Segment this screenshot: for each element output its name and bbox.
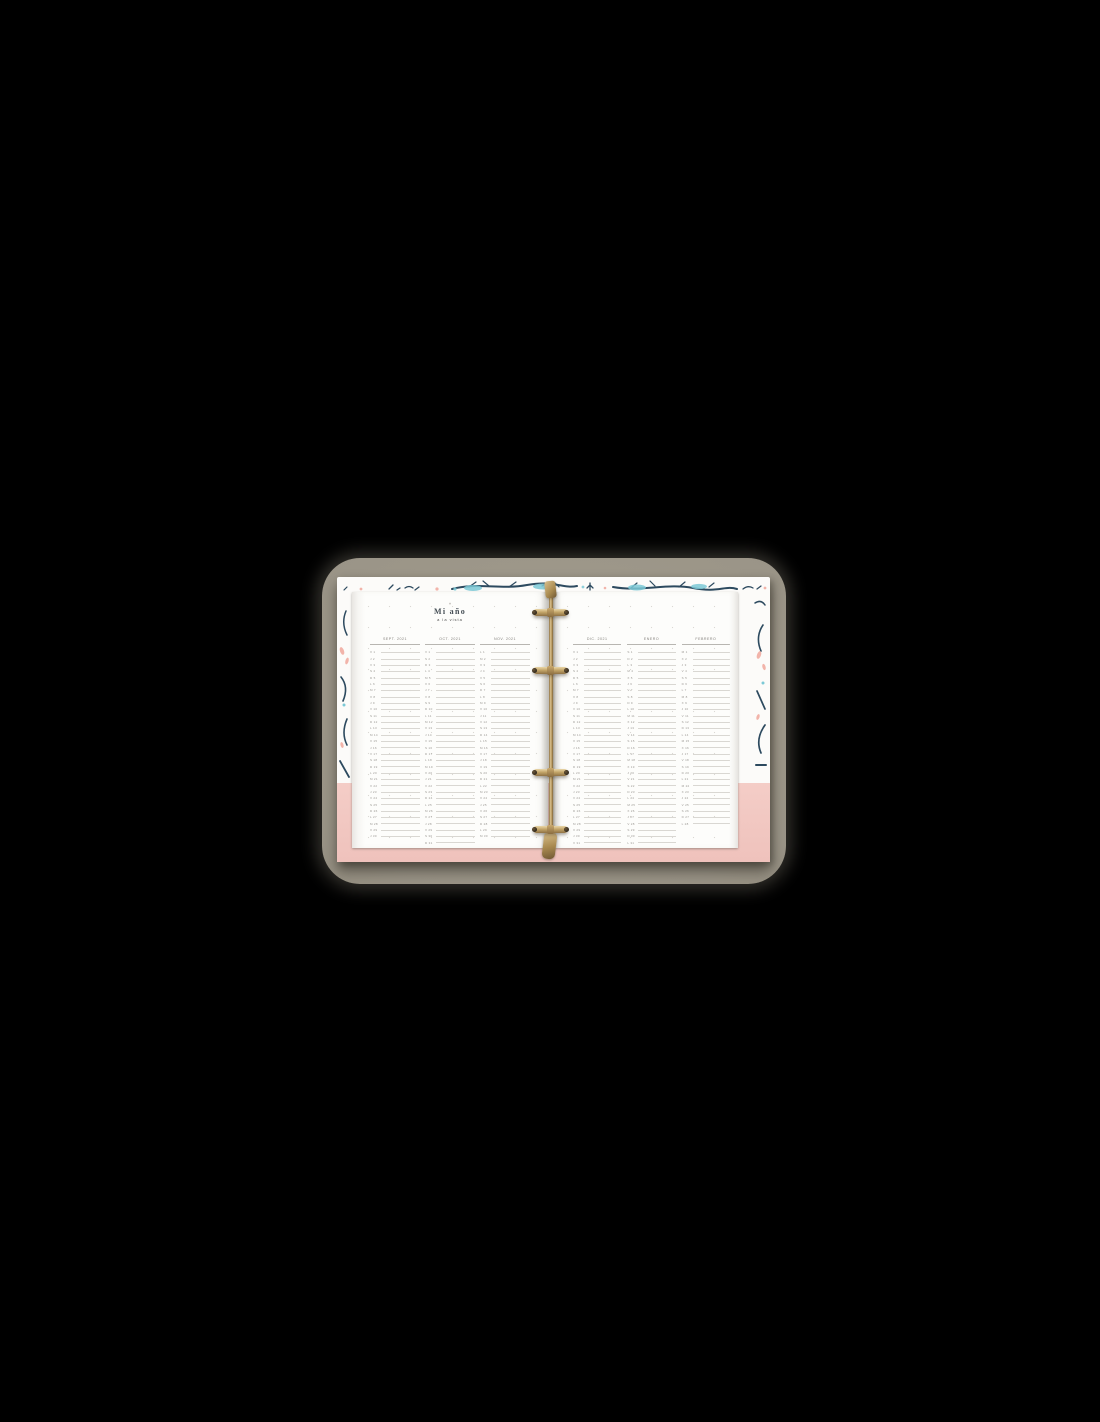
- day-writing-line: [693, 760, 730, 761]
- day-writing-line: [491, 735, 530, 736]
- day-writing-line: [381, 792, 420, 793]
- day-writing-line: [693, 665, 730, 666]
- day-writing-line: [584, 760, 621, 761]
- day-writing-line: [584, 678, 621, 679]
- day-writing-line: [436, 792, 475, 793]
- day-label: V 22: [425, 784, 436, 788]
- month-header: ENERO: [627, 637, 675, 642]
- day-writing-line: [491, 836, 530, 837]
- day-label: S 5: [682, 676, 693, 680]
- day-writing-line: [381, 766, 420, 767]
- day-label: V 4: [682, 669, 693, 673]
- day-label: D 19: [573, 765, 584, 769]
- day-label: S 30: [425, 834, 436, 838]
- day-label: V 17: [370, 752, 381, 756]
- day-label: M 9: [480, 701, 491, 705]
- day-label: M 21: [573, 777, 584, 781]
- day-label: J 6: [627, 682, 638, 686]
- month-header: NOV. 2021: [480, 637, 530, 642]
- day-rows: V 1S 2D 3L 4M 5X 6J 7V 8S 9D 10L 11M 12X…: [425, 648, 475, 845]
- day-writing-line: [693, 652, 730, 653]
- day-writing-line: [491, 671, 530, 672]
- day-label: D 9: [627, 701, 638, 705]
- day-writing-line: [638, 671, 675, 672]
- day-writing-line: [638, 766, 675, 767]
- day-label: X 22: [573, 784, 584, 788]
- day-label: X 19: [627, 765, 638, 769]
- day-writing-line: [381, 779, 420, 780]
- day-label: J 30: [370, 834, 381, 838]
- day-writing-line: [584, 842, 621, 843]
- day-label: M 11: [627, 714, 638, 718]
- day-label: X 20: [425, 771, 436, 775]
- day-rows: X 1J 2V 3S 4D 5L 6M 7X 8J 9V 10S 11D 12L…: [370, 648, 420, 838]
- day-writing-line: [436, 671, 475, 672]
- day-writing-line: [693, 671, 730, 672]
- day-writing-line: [491, 760, 530, 761]
- day-label: L 20: [370, 771, 381, 775]
- day-label: D 21: [480, 777, 491, 781]
- day-label: L 4: [425, 669, 436, 673]
- day-writing-line: [584, 747, 621, 748]
- day-writing-line: [584, 785, 621, 786]
- day-label: J 13: [627, 726, 638, 730]
- day-writing-line: [638, 709, 675, 710]
- day-label: M 14: [573, 733, 584, 737]
- day-label: V 31: [573, 841, 584, 845]
- day-label: V 12: [480, 720, 491, 724]
- day-label: M 23: [480, 790, 491, 794]
- day-writing-line: [693, 709, 730, 710]
- month-header: FEBRERO: [682, 637, 730, 642]
- day-writing-line: [638, 659, 675, 660]
- day-label: J 16: [370, 746, 381, 750]
- day-writing-line: [491, 716, 530, 717]
- day-label: V 25: [682, 803, 693, 807]
- month-header: SEPT. 2021: [370, 637, 420, 642]
- day-writing-line: [584, 722, 621, 723]
- day-writing-line: [491, 703, 530, 704]
- day-writing-line: [436, 830, 475, 831]
- day-writing-line: [693, 811, 730, 812]
- day-writing-line: [491, 722, 530, 723]
- day-writing-line: [436, 709, 475, 710]
- day-writing-line: [638, 741, 675, 742]
- day-writing-line: [381, 678, 420, 679]
- day-writing-line: [693, 684, 730, 685]
- day-writing-line: [436, 754, 475, 755]
- day-label: J 27: [627, 815, 638, 819]
- day-writing-line: [491, 709, 530, 710]
- day-writing-line: [436, 652, 475, 653]
- day-writing-line: [693, 690, 730, 691]
- day-writing-line: [381, 836, 420, 837]
- day-label: X 26: [627, 809, 638, 813]
- day-label: S 26: [682, 809, 693, 813]
- day-writing-line: [638, 760, 675, 761]
- day-label: J 2: [370, 657, 381, 661]
- day-label: S 4: [370, 669, 381, 673]
- cover-floral-pattern-right: [751, 595, 770, 780]
- day-writing-line: [491, 665, 530, 666]
- day-label: D 28: [480, 822, 491, 826]
- day-label: L 8: [480, 695, 491, 699]
- day-writing-line: [693, 678, 730, 679]
- day-writing-line: [381, 747, 420, 748]
- day-writing-line: [436, 728, 475, 729]
- day-writing-line: [381, 773, 420, 774]
- day-writing-line: [693, 659, 730, 660]
- day-writing-line: [381, 722, 420, 723]
- day-label: X 8: [573, 695, 584, 699]
- day-label: D 17: [425, 752, 436, 756]
- day-label: D 2: [627, 657, 638, 661]
- day-label: X 22: [370, 784, 381, 788]
- day-writing-line: [693, 779, 730, 780]
- day-label: S 27: [480, 815, 491, 819]
- day-label: V 7: [627, 688, 638, 692]
- day-writing-line: [381, 671, 420, 672]
- day-label: D 23: [627, 790, 638, 794]
- day-writing-line: [436, 690, 475, 691]
- day-writing-line: [381, 703, 420, 704]
- day-label: X 23: [682, 790, 693, 794]
- day-writing-line: [436, 773, 475, 774]
- day-row: L 28: [682, 819, 730, 825]
- day-label: L 7: [682, 688, 693, 692]
- day-writing-line: [693, 773, 730, 774]
- day-writing-line: [638, 716, 675, 717]
- product-photo: ♥ Mi año a la vista SEPT. 2021X 1J 2V 3S…: [0, 0, 1100, 1422]
- day-writing-line: [584, 766, 621, 767]
- day-label: V 8: [425, 695, 436, 699]
- day-writing-line: [436, 798, 475, 799]
- day-label: M 19: [425, 765, 436, 769]
- day-label: L 21: [682, 777, 693, 781]
- day-label: X 8: [370, 695, 381, 699]
- day-writing-line: [381, 659, 420, 660]
- day-writing-line: [638, 754, 675, 755]
- day-label: L 6: [370, 682, 381, 686]
- day-label: X 6: [425, 682, 436, 686]
- day-label: V 10: [573, 707, 584, 711]
- day-label: L 13: [573, 726, 584, 730]
- day-label: D 26: [370, 809, 381, 813]
- day-writing-line: [381, 716, 420, 717]
- spine-shadow: [541, 592, 561, 848]
- day-label: M 28: [370, 822, 381, 826]
- day-label: L 13: [370, 726, 381, 730]
- day-writing-line: [638, 722, 675, 723]
- day-row: J 30: [370, 832, 420, 838]
- day-writing-line: [584, 779, 621, 780]
- day-writing-line: [381, 690, 420, 691]
- day-writing-line: [381, 697, 420, 698]
- month-column: NOV. 2021L 1M 2X 3J 4V 5S 6D 7L 8M 9X 10…: [480, 637, 530, 846]
- day-label: V 15: [425, 739, 436, 743]
- day-writing-line: [693, 754, 730, 755]
- day-writing-line: [693, 741, 730, 742]
- day-writing-line: [638, 703, 675, 704]
- day-label: X 10: [480, 707, 491, 711]
- day-writing-line: [381, 709, 420, 710]
- day-writing-line: [491, 811, 530, 812]
- day-writing-line: [491, 684, 530, 685]
- day-writing-line: [638, 690, 675, 691]
- day-label: V 3: [370, 663, 381, 667]
- day-label: D 3: [425, 663, 436, 667]
- day-writing-line: [584, 823, 621, 824]
- day-writing-line: [381, 830, 420, 831]
- day-label: D 7: [480, 688, 491, 692]
- day-label: J 3: [682, 663, 693, 667]
- day-writing-line: [584, 671, 621, 672]
- open-planner-binder: ♥ Mi año a la vista SEPT. 2021X 1J 2V 3S…: [337, 577, 770, 862]
- day-writing-line: [491, 766, 530, 767]
- day-writing-line: [638, 811, 675, 812]
- day-writing-line: [638, 678, 675, 679]
- day-writing-line: [491, 652, 530, 653]
- day-label: S 2: [425, 657, 436, 661]
- day-writing-line: [491, 785, 530, 786]
- day-label: M 15: [682, 739, 693, 743]
- day-label: J 14: [425, 733, 436, 737]
- day-label: D 12: [370, 720, 381, 724]
- day-label: J 21: [425, 777, 436, 781]
- day-writing-line: [693, 703, 730, 704]
- day-writing-line: [584, 817, 621, 818]
- day-writing-line: [693, 722, 730, 723]
- day-label: M 4: [627, 669, 638, 673]
- day-label: M 8: [682, 695, 693, 699]
- day-writing-line: [638, 798, 675, 799]
- day-label: D 13: [682, 726, 693, 730]
- day-label: D 14: [480, 733, 491, 737]
- day-label: M 12: [425, 720, 436, 724]
- day-writing-line: [436, 817, 475, 818]
- day-writing-line: [638, 779, 675, 780]
- day-label: J 4: [480, 669, 491, 673]
- month-column: FEBREROM 1X 2J 3V 4S 5D 6L 7M 8X 9J 10V …: [682, 637, 730, 846]
- day-label: X 5: [627, 676, 638, 680]
- month-header-underline: [682, 644, 730, 645]
- day-label: V 26: [480, 809, 491, 813]
- month-columns-right: DIC. 2021X 1J 2V 3S 4D 5L 6M 7X 8J 9V 10…: [573, 637, 730, 846]
- day-label: V 11: [682, 714, 693, 718]
- day-label: L 11: [425, 714, 436, 718]
- day-label: J 30: [573, 834, 584, 838]
- day-label: V 3: [573, 663, 584, 667]
- page-subtitle: a la vista: [352, 617, 548, 622]
- day-writing-line: [381, 760, 420, 761]
- day-label: D 16: [627, 746, 638, 750]
- month-column: ENEROS 1D 2L 3M 4X 5J 6V 7S 8D 9L 10M 11…: [627, 637, 675, 846]
- day-label: D 27: [682, 815, 693, 819]
- day-writing-line: [693, 823, 730, 824]
- day-label: S 8: [627, 695, 638, 699]
- day-writing-line: [381, 684, 420, 685]
- day-label: V 18: [682, 758, 693, 762]
- planner-page-right: DIC. 2021X 1J 2V 3S 4D 5L 6M 7X 8J 9V 10…: [551, 592, 738, 848]
- day-label: S 12: [682, 720, 693, 724]
- day-label: V 19: [480, 765, 491, 769]
- day-writing-line: [436, 722, 475, 723]
- day-label: X 29: [573, 828, 584, 832]
- day-label: S 16: [425, 746, 436, 750]
- day-label: J 24: [682, 796, 693, 800]
- day-label: X 1: [370, 650, 381, 654]
- day-label: X 15: [573, 739, 584, 743]
- day-writing-line: [638, 652, 675, 653]
- day-writing-line: [436, 842, 475, 843]
- day-writing-line: [436, 766, 475, 767]
- day-label: J 28: [425, 822, 436, 826]
- day-rows: L 1M 2X 3J 4V 5S 6D 7L 8M 9X 10J 11V 12S…: [480, 648, 530, 838]
- day-writing-line: [638, 830, 675, 831]
- day-label: V 5: [480, 676, 491, 680]
- month-header-underline: [573, 644, 621, 645]
- month-header-underline: [480, 644, 530, 645]
- day-label: X 17: [480, 752, 491, 756]
- day-writing-line: [436, 697, 475, 698]
- day-writing-line: [436, 735, 475, 736]
- day-writing-line: [381, 665, 420, 666]
- day-label: M 5: [425, 676, 436, 680]
- day-label: M 30: [480, 834, 491, 838]
- day-label: L 29: [480, 828, 491, 832]
- page-title-block: ♥ Mi año a la vista: [352, 601, 548, 622]
- day-rows: S 1D 2L 3M 4X 5J 6V 7S 8D 9L 10M 11X 12J…: [627, 648, 675, 845]
- day-writing-line: [491, 798, 530, 799]
- day-label: V 14: [627, 733, 638, 737]
- day-label: M 26: [425, 809, 436, 813]
- day-label: D 31: [425, 841, 436, 845]
- day-label: V 28: [627, 822, 638, 826]
- day-row: V 31: [573, 838, 621, 844]
- day-label: S 11: [370, 714, 381, 718]
- day-label: L 15: [480, 739, 491, 743]
- page-title: Mi año: [352, 607, 548, 616]
- day-label: J 23: [573, 790, 584, 794]
- day-label: S 4: [573, 669, 584, 673]
- planner-page-left: ♥ Mi año a la vista SEPT. 2021X 1J 2V 3S…: [352, 592, 548, 848]
- day-writing-line: [491, 830, 530, 831]
- day-writing-line: [638, 665, 675, 666]
- day-label: M 25: [627, 803, 638, 807]
- day-label: S 29: [627, 828, 638, 832]
- day-label: J 9: [370, 701, 381, 705]
- day-label: L 10: [627, 707, 638, 711]
- day-label: S 18: [573, 758, 584, 762]
- day-label: L 28: [682, 822, 693, 826]
- day-writing-line: [584, 735, 621, 736]
- day-label: X 12: [627, 720, 638, 724]
- month-header-underline: [425, 644, 475, 645]
- day-writing-line: [693, 697, 730, 698]
- day-writing-line: [584, 798, 621, 799]
- day-writing-line: [584, 703, 621, 704]
- day-label: X 13: [425, 726, 436, 730]
- day-label: S 11: [573, 714, 584, 718]
- day-writing-line: [381, 817, 420, 818]
- day-label: M 2: [480, 657, 491, 661]
- day-label: D 20: [682, 771, 693, 775]
- day-writing-line: [491, 754, 530, 755]
- day-writing-line: [381, 798, 420, 799]
- day-label: X 1: [573, 650, 584, 654]
- day-label: S 6: [480, 682, 491, 686]
- month-header: DIC. 2021: [573, 637, 621, 642]
- day-label: L 18: [425, 758, 436, 762]
- day-label: L 1: [480, 650, 491, 654]
- day-writing-line: [584, 773, 621, 774]
- day-label: L 14: [682, 733, 693, 737]
- day-writing-line: [693, 728, 730, 729]
- day-writing-line: [584, 792, 621, 793]
- day-writing-line: [584, 741, 621, 742]
- day-label: D 5: [573, 676, 584, 680]
- day-row: D 31: [425, 838, 475, 844]
- day-writing-line: [491, 817, 530, 818]
- day-writing-line: [491, 741, 530, 742]
- day-writing-line: [436, 785, 475, 786]
- month-columns-left: SEPT. 2021X 1J 2V 3S 4D 5L 6M 7X 8J 9V 1…: [370, 637, 530, 846]
- month-column: SEPT. 2021X 1J 2V 3S 4D 5L 6M 7X 8J 9V 1…: [370, 637, 420, 846]
- day-label: X 3: [480, 663, 491, 667]
- day-label: M 16: [480, 746, 491, 750]
- day-label: M 18: [627, 758, 638, 762]
- day-label: V 10: [370, 707, 381, 711]
- day-label: D 5: [370, 676, 381, 680]
- day-label: M 21: [370, 777, 381, 781]
- day-writing-line: [436, 741, 475, 742]
- day-label: D 12: [573, 720, 584, 724]
- day-label: L 6: [573, 682, 584, 686]
- day-label: X 27: [425, 815, 436, 819]
- day-writing-line: [436, 779, 475, 780]
- day-writing-line: [693, 735, 730, 736]
- month-header-underline: [627, 644, 675, 645]
- day-label: L 31: [627, 841, 638, 845]
- day-writing-line: [693, 817, 730, 818]
- day-writing-line: [638, 842, 675, 843]
- month-header: OCT. 2021: [425, 637, 475, 642]
- day-writing-line: [638, 785, 675, 786]
- day-writing-line: [693, 766, 730, 767]
- day-writing-line: [693, 716, 730, 717]
- day-rows: X 1J 2V 3S 4D 5L 6M 7X 8J 9V 10S 11D 12L…: [573, 648, 621, 845]
- day-label: S 13: [480, 726, 491, 730]
- day-writing-line: [381, 804, 420, 805]
- day-writing-line: [693, 785, 730, 786]
- day-label: S 25: [573, 803, 584, 807]
- day-label: J 10: [682, 707, 693, 711]
- day-label: L 27: [370, 815, 381, 819]
- day-label: X 16: [682, 746, 693, 750]
- day-writing-line: [436, 684, 475, 685]
- day-writing-line: [491, 678, 530, 679]
- day-label: V 29: [425, 828, 436, 832]
- day-writing-line: [638, 836, 675, 837]
- day-label: S 18: [370, 758, 381, 762]
- day-writing-line: [381, 728, 420, 729]
- day-label: S 1: [627, 650, 638, 654]
- day-writing-line: [584, 754, 621, 755]
- day-label: L 17: [627, 752, 638, 756]
- day-writing-line: [693, 747, 730, 748]
- day-label: D 30: [627, 834, 638, 838]
- day-label: L 24: [627, 796, 638, 800]
